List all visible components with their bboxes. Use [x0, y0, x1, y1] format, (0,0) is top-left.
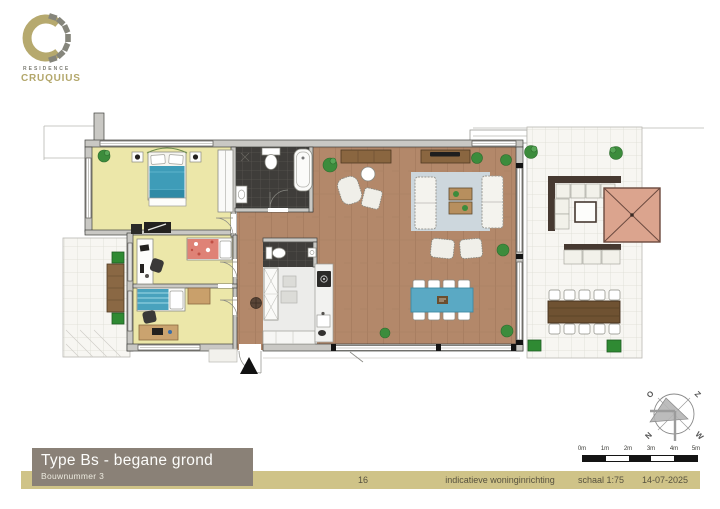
- planter: [112, 313, 124, 324]
- scale-segment: [583, 456, 606, 461]
- compass-north: N: [643, 430, 654, 441]
- scale-bar: 0m 1m 2m 3m 4m 5m: [580, 446, 702, 464]
- planter: [528, 340, 541, 351]
- logo-text-cruquius: CRUQUIUS: [21, 73, 81, 84]
- compass-south: Z: [693, 389, 703, 399]
- compass-east: O: [645, 389, 656, 400]
- brochure-page: RESIDENCE CRUQUIUS 16 indicatieve woning…: [0, 0, 720, 509]
- date-label: 14-07-2025: [632, 475, 698, 485]
- washbasin: [236, 186, 247, 203]
- logo-arc: [27, 19, 58, 57]
- footer-note: indicatieve woninginrichting: [420, 475, 580, 485]
- single-bed-blue: [137, 288, 185, 311]
- scale-tick-label: 0m: [572, 446, 592, 452]
- plant: [98, 150, 110, 162]
- double-bed: [147, 148, 187, 206]
- scale-tick-label: 1m: [595, 446, 615, 452]
- side-table: [361, 167, 375, 181]
- single-bed-red: [187, 238, 232, 260]
- page-subtitle: Bouwnummer 3: [41, 471, 104, 481]
- scale-segment: [674, 456, 697, 461]
- page-title: Type Bs - begane grond: [41, 452, 213, 470]
- bathtub: [294, 149, 312, 191]
- outdoor-sofa: [564, 244, 621, 264]
- scale-tick-label: 2m: [618, 446, 638, 452]
- toilet-bowl: [265, 155, 277, 170]
- scale-bar-segments: [582, 455, 698, 462]
- outdoor-coffee-table: [575, 202, 596, 222]
- logo-mark: RESIDENCE CRUQUIUS: [16, 12, 96, 90]
- parasol: [604, 188, 660, 242]
- logo-text-residence: RESIDENCE: [23, 66, 70, 72]
- patio: [63, 238, 130, 357]
- dresser: [144, 222, 171, 233]
- scale-label: schaal 1:75: [570, 475, 632, 485]
- page-number: 16: [340, 475, 386, 485]
- cooktop: [317, 271, 331, 287]
- counter-bottom: [263, 331, 315, 344]
- entrance: [209, 349, 258, 374]
- entrance-marker: [240, 357, 258, 374]
- scale-segment: [629, 456, 652, 461]
- outdoor-dining-table: [548, 301, 620, 323]
- terrace: [525, 127, 661, 358]
- floor-plan: [0, 0, 720, 509]
- toilet-tank: [262, 148, 280, 155]
- scale-segment: [606, 456, 629, 461]
- compass-rose: O Z N W: [636, 384, 714, 448]
- title-block: Type Bs - begane grond Bouwnummer 3: [32, 448, 253, 486]
- planter: [112, 252, 124, 263]
- scale-segment: [651, 456, 674, 461]
- tv: [430, 152, 460, 157]
- tv-cabinet: [131, 224, 142, 234]
- compass-west: W: [693, 430, 705, 442]
- wc-basin: [308, 248, 316, 257]
- logo: RESIDENCE CRUQUIUS: [16, 12, 96, 90]
- sideboard: [341, 150, 391, 163]
- planter: [607, 340, 621, 352]
- hall-stool: [251, 298, 262, 309]
- side-cabinet: [188, 288, 210, 304]
- outdoor-dining-set: [548, 290, 620, 334]
